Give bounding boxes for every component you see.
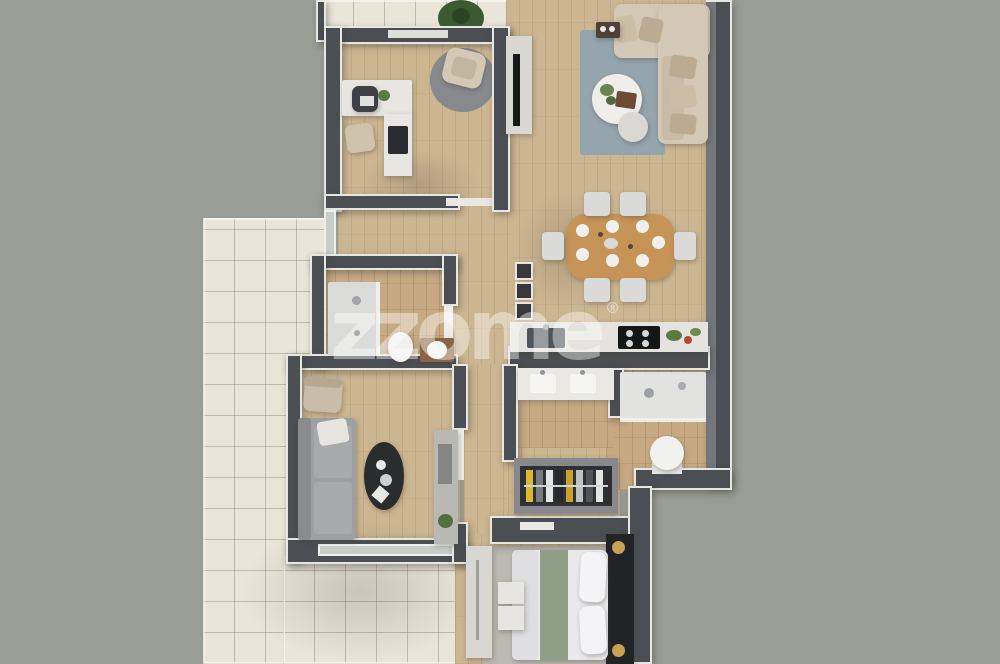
office-desk-plant bbox=[378, 90, 390, 101]
bed-bench-2 bbox=[498, 606, 524, 630]
family-sideboard-plant bbox=[438, 514, 453, 528]
dining-plate-2 bbox=[576, 248, 589, 261]
family-table-decor-1 bbox=[376, 460, 386, 470]
wall-bath1-left bbox=[310, 254, 326, 368]
bed-pillow-1 bbox=[579, 551, 608, 602]
coffee-table-tray bbox=[615, 91, 637, 110]
office-window-sill bbox=[388, 30, 448, 38]
kitchen-greens-2 bbox=[690, 328, 701, 336]
office-desk-papers bbox=[360, 96, 374, 106]
kitchen-tomato bbox=[684, 336, 692, 344]
bed-runner bbox=[540, 550, 568, 660]
family-sideboard-decor bbox=[438, 444, 452, 484]
divider-block-1 bbox=[517, 264, 531, 278]
dining-chair-2 bbox=[620, 192, 646, 216]
side-table-cup-2 bbox=[609, 26, 615, 32]
watermark-text: zzome bbox=[330, 281, 600, 379]
bed-lamp-bottom bbox=[612, 644, 625, 657]
coffee-side-table bbox=[618, 112, 648, 142]
closet-rail bbox=[524, 485, 608, 487]
wall-office-left bbox=[324, 26, 342, 212]
cooktop-burner-2 bbox=[642, 330, 649, 337]
dining-centerpiece bbox=[604, 238, 618, 249]
wall-office-bottom bbox=[324, 194, 460, 210]
terrace-glass-door bbox=[324, 210, 336, 260]
dining-plate-5 bbox=[636, 220, 649, 233]
bedroom-door-sill bbox=[520, 522, 554, 530]
family-sofa-cushion-2 bbox=[314, 482, 352, 534]
dining-chair-6 bbox=[674, 232, 696, 260]
shower-2-head bbox=[644, 388, 654, 398]
sofa-pillow-3 bbox=[669, 54, 698, 79]
cooktop bbox=[618, 326, 660, 349]
dining-plate-7 bbox=[652, 236, 665, 249]
watermark: zzome® bbox=[330, 288, 620, 372]
sofa-pillow-5 bbox=[669, 113, 697, 135]
dining-chair-1 bbox=[584, 192, 610, 216]
family-table-decor-2 bbox=[380, 474, 392, 486]
cooktop-burner-1 bbox=[626, 330, 633, 337]
family-sliding-door bbox=[318, 544, 464, 556]
coffee-table-plant bbox=[600, 84, 614, 96]
dining-plate-3 bbox=[606, 220, 619, 233]
bed-bench-1 bbox=[498, 582, 524, 604]
shower-2-floor bbox=[620, 372, 706, 420]
family-sofa-back bbox=[298, 418, 311, 540]
kitchen-greens bbox=[666, 330, 682, 341]
office-door-sill bbox=[446, 198, 494, 206]
sofa-pillow-4 bbox=[669, 84, 697, 109]
dining-chair-5 bbox=[542, 232, 564, 260]
bedroom-dresser bbox=[466, 546, 492, 658]
dining-decor-dot-2 bbox=[628, 244, 633, 249]
watermark-registered-icon: ® bbox=[605, 299, 620, 317]
cooktop-burner-4 bbox=[642, 340, 649, 347]
floorplan-canvas: zzome® bbox=[0, 0, 1000, 664]
balcony-plant-core bbox=[452, 8, 470, 24]
toilet-2-bowl bbox=[650, 436, 684, 470]
tv-screen bbox=[513, 54, 520, 126]
shower-2-head-2 bbox=[678, 382, 686, 390]
bed-pillow-2 bbox=[579, 605, 607, 654]
shower-2-glass bbox=[620, 418, 706, 422]
bed-blanket-foot bbox=[512, 550, 538, 660]
cooktop-burner-3 bbox=[626, 340, 633, 347]
wall-bath1-top bbox=[310, 254, 458, 270]
dining-plate-1 bbox=[576, 224, 589, 237]
office-guest-chair bbox=[344, 122, 376, 154]
office-laptop bbox=[388, 126, 408, 154]
side-table-cup-1 bbox=[600, 26, 606, 32]
family-sofa-throw bbox=[316, 418, 350, 447]
bedroom-dresser-handle bbox=[476, 560, 479, 640]
dining-plate-4 bbox=[606, 254, 619, 267]
dining-decor-dot-1 bbox=[598, 232, 603, 237]
bed-lamp-top bbox=[612, 541, 625, 554]
dining-chair-4 bbox=[620, 278, 646, 302]
dining-plate-6 bbox=[636, 254, 649, 267]
